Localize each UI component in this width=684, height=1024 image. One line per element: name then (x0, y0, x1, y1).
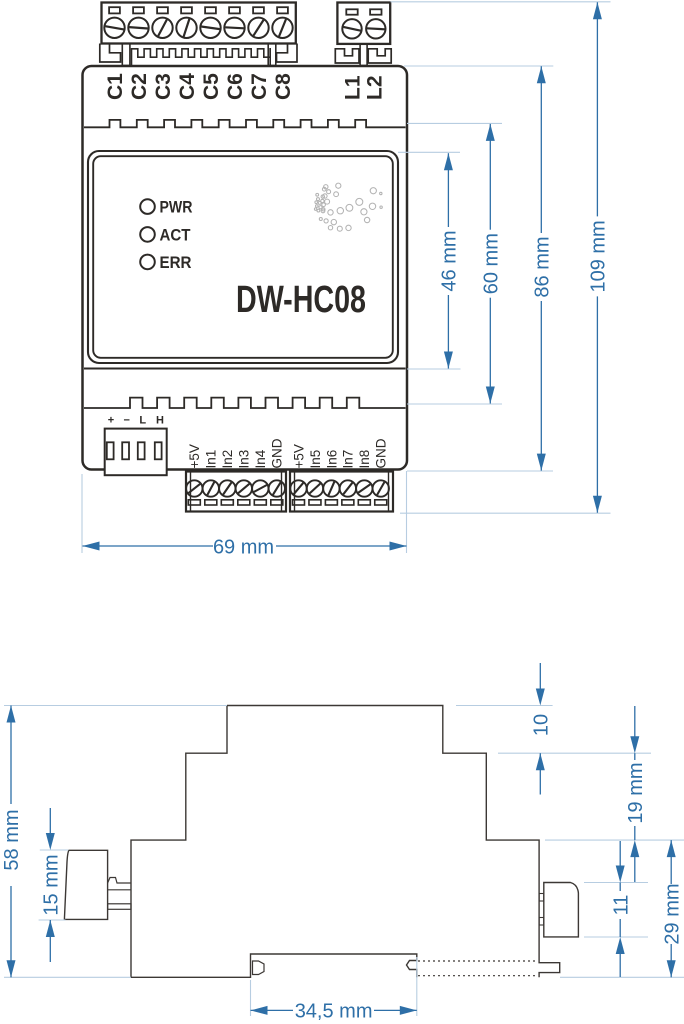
svg-text:34,5 mm: 34,5 mm (295, 1000, 373, 1022)
svg-text:H: H (156, 415, 164, 427)
svg-text:C2: C2 (128, 73, 151, 100)
svg-text:C7: C7 (248, 73, 271, 100)
svg-text:60 mm: 60 mm (481, 233, 503, 294)
svg-text:L1: L1 (342, 75, 365, 100)
svg-text:109 mm: 109 mm (588, 220, 610, 292)
svg-text:DW-HC08: DW-HC08 (236, 279, 366, 321)
svg-text:GND: GND (270, 438, 285, 468)
svg-text:ACT: ACT (160, 226, 191, 244)
svg-text:C4: C4 (176, 73, 199, 100)
svg-text:46 mm: 46 mm (439, 230, 461, 291)
svg-text:69 mm: 69 mm (213, 536, 274, 558)
svg-text:In7: In7 (341, 450, 356, 469)
svg-text:In3: In3 (237, 450, 252, 469)
svg-text:PWR: PWR (160, 199, 193, 217)
svg-text:+5V: +5V (187, 444, 202, 468)
svg-text:C8: C8 (272, 73, 295, 100)
svg-text:C5: C5 (200, 73, 223, 100)
svg-text:C6: C6 (224, 73, 247, 100)
svg-text:+5V: +5V (291, 444, 306, 468)
svg-text:ERR: ERR (160, 254, 192, 272)
svg-text:11: 11 (610, 895, 632, 916)
svg-text:In8: In8 (357, 450, 372, 469)
svg-text:In2: In2 (220, 450, 235, 469)
svg-text:In6: In6 (324, 450, 339, 469)
svg-text:In1: In1 (204, 450, 219, 469)
svg-text:In5: In5 (308, 450, 323, 469)
svg-text:L: L (139, 415, 146, 427)
svg-text:+: + (108, 415, 114, 427)
svg-text:−: − (123, 415, 129, 427)
svg-text:29 mm: 29 mm (661, 883, 683, 944)
svg-text:58 mm: 58 mm (1, 809, 23, 870)
svg-text:15 mm: 15 mm (41, 854, 63, 915)
svg-text:C1: C1 (104, 73, 127, 100)
svg-text:L2: L2 (364, 75, 387, 100)
svg-text:C3: C3 (152, 73, 175, 100)
svg-text:19 mm: 19 mm (625, 762, 647, 823)
svg-text:GND: GND (374, 438, 389, 468)
svg-text:In4: In4 (253, 449, 268, 468)
svg-text:10: 10 (531, 714, 553, 736)
svg-text:86 mm: 86 mm (532, 236, 554, 297)
